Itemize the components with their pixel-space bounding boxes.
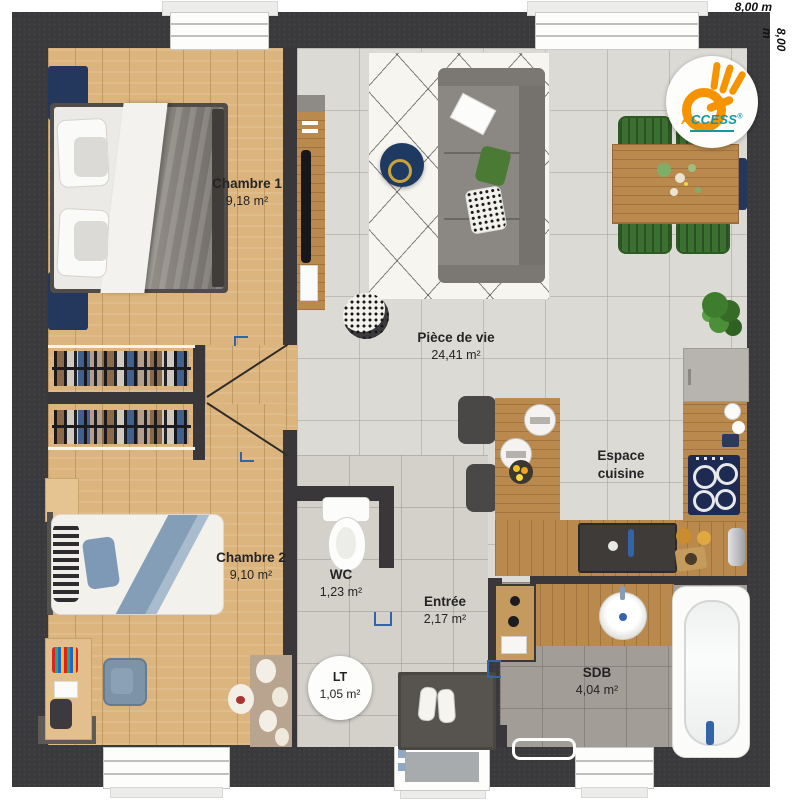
sofa xyxy=(438,68,545,283)
living-window xyxy=(535,12,699,50)
room-label-lt: LT 1,05 m² xyxy=(320,668,361,703)
room-area: 9,18 m² xyxy=(212,193,282,210)
wall-entry-bathroom-stub xyxy=(495,725,507,747)
room-label-chambre2: Chambre 2 9,10 m² xyxy=(216,549,286,584)
room-area: 9,10 m² xyxy=(216,567,286,584)
wall-wc-right xyxy=(379,486,394,568)
room-label-wc: WC 1,23 m² xyxy=(320,566,362,601)
room-name: Chambre 1 xyxy=(212,175,282,193)
book xyxy=(450,93,497,136)
bar-stool xyxy=(524,404,556,436)
faucet xyxy=(620,586,625,600)
kitchen-jars xyxy=(676,528,692,544)
room-area: 2,17 m² xyxy=(424,611,466,628)
room-label-sdb: SDB 4,04 m² xyxy=(576,664,618,699)
access-logo: ACCESS® xyxy=(666,56,758,148)
closet-bedroom1 xyxy=(48,345,195,392)
dining-table xyxy=(612,144,739,224)
access-logo-text: ACCESS® xyxy=(666,112,758,127)
plant xyxy=(702,292,728,318)
kettle xyxy=(728,528,745,566)
shoe-cabinet xyxy=(494,584,536,662)
cooktop xyxy=(688,455,740,515)
tv-console xyxy=(297,95,325,310)
bathroom-sink xyxy=(599,592,647,640)
door-handle-icon xyxy=(234,336,248,346)
toy-mat xyxy=(250,655,292,747)
sneaker xyxy=(417,686,437,722)
kitchen-accessory xyxy=(722,434,739,447)
room-name: Entrée xyxy=(424,593,466,611)
room-area: 1,23 m² xyxy=(320,584,362,601)
pouf xyxy=(343,293,389,339)
desk-chair xyxy=(50,699,72,729)
table-flowers xyxy=(657,163,671,177)
front-door xyxy=(394,745,490,791)
toilet xyxy=(328,517,366,571)
closet-bedroom2 xyxy=(48,404,195,450)
door-handle-icon xyxy=(240,452,254,462)
colored-pencils xyxy=(52,647,78,673)
room-label-piece-de-vie: Pièce de vie 24,41 m² xyxy=(417,329,494,364)
bedroom1-window xyxy=(170,12,269,50)
kids-armchair xyxy=(103,658,147,706)
dimension-top: 8,00 m xyxy=(735,0,772,14)
room-name: cuisine xyxy=(597,465,644,483)
fruit-bowl xyxy=(509,460,533,484)
wall-bedroom-divider xyxy=(48,392,205,404)
counter-chair xyxy=(458,396,496,444)
polka-dot-pillow xyxy=(464,185,507,235)
dimension-right: 8,00 m xyxy=(760,28,788,51)
room-label-espace-cuisine: Espace cuisine xyxy=(597,447,644,483)
pillow xyxy=(82,536,121,590)
wall-bedroom1-living xyxy=(283,48,297,345)
room-name: SDB xyxy=(576,664,618,682)
room-name: WC xyxy=(320,566,362,584)
teddy-bears xyxy=(256,659,276,683)
plates xyxy=(724,403,741,420)
pillow xyxy=(53,524,79,602)
door-symbol-icon xyxy=(487,660,501,678)
tub-faucet xyxy=(706,721,714,745)
room-name: Chambre 2 xyxy=(216,549,286,567)
double-bed xyxy=(50,103,228,293)
room-label-chambre1: Chambre 1 9,18 m² xyxy=(212,175,282,210)
cutting-board xyxy=(675,546,708,572)
faucet xyxy=(628,529,634,557)
coffee-table xyxy=(380,143,424,187)
tv-screen xyxy=(301,150,311,263)
bathroom-window xyxy=(575,747,654,789)
counter-chair xyxy=(466,464,498,512)
room-area: 24,41 m² xyxy=(417,347,494,364)
kitchen-sink xyxy=(578,523,677,573)
room-area: 1,05 m² xyxy=(320,686,361,703)
door-symbol-icon xyxy=(374,612,392,626)
floor-plan: Chambre 1 9,18 m² Chambre 2 9,10 m² Pièc… xyxy=(0,0,800,800)
window-sill xyxy=(581,787,648,798)
window-sill xyxy=(110,787,223,798)
bedroom2-window xyxy=(103,747,230,789)
room-name: Espace xyxy=(597,447,644,465)
refrigerator xyxy=(683,348,749,402)
single-bed xyxy=(47,512,222,615)
bath-mat xyxy=(512,738,576,760)
teddy-bear xyxy=(228,684,254,714)
doormat xyxy=(398,672,496,750)
room-name: LT xyxy=(320,668,361,686)
room-area: 4,04 m² xyxy=(576,682,618,699)
sneaker xyxy=(437,688,456,723)
bathtub xyxy=(672,586,750,758)
room-label-entree: Entrée 2,17 m² xyxy=(424,593,466,628)
room-name: Pièce de vie xyxy=(417,329,494,347)
desk xyxy=(45,638,92,740)
